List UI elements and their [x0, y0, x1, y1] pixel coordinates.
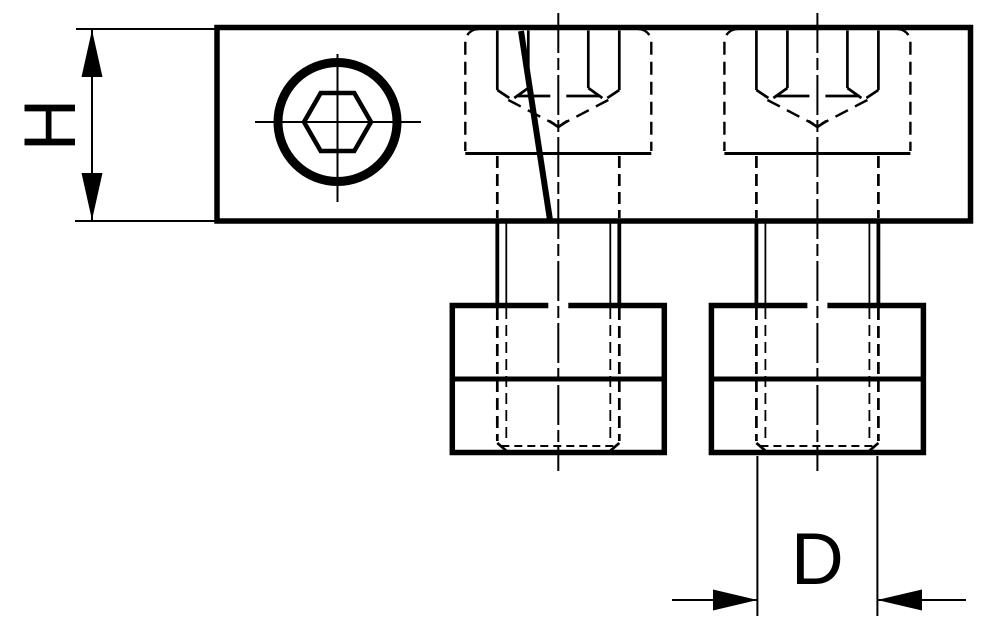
arrowhead-right-icon	[713, 590, 757, 611]
technical-drawing: H D	[0, 0, 1000, 625]
drawing-canvas: H D	[0, 0, 1000, 625]
arrowhead-down-icon	[82, 173, 103, 220]
arrowhead-left-icon	[877, 590, 922, 611]
diameter-dimension: D	[672, 456, 966, 616]
diameter-label: D	[791, 519, 844, 600]
height-label: H	[10, 99, 91, 152]
clamping-bar	[217, 28, 971, 222]
height-dimension: H	[10, 29, 219, 221]
arrowhead-up-icon	[82, 30, 103, 77]
